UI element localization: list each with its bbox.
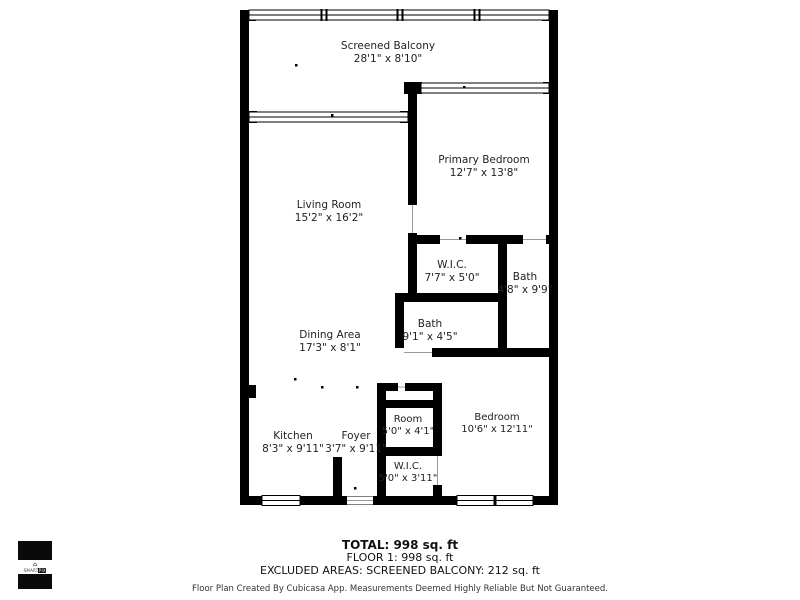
logo-band: ⌂ SMARTPIX <box>18 560 52 574</box>
sliding-doors <box>249 82 553 123</box>
total-area-text: TOTAL: 998 sq. ft <box>0 538 800 552</box>
room-dims: 3'7" x 9'11" <box>325 443 387 456</box>
room-dims: 15'2" x 16'2" <box>295 212 363 225</box>
room-name: Kitchen <box>262 430 324 443</box>
logo-brand-text: SMARTPIX <box>24 568 47 573</box>
room-dims: 4'8" x 9'9" <box>497 284 552 297</box>
room-dims: 8'3" x 9'11" <box>262 443 324 456</box>
room-label-screened-balcony: Screened Balcony 28'1" x 8'10" <box>341 40 435 66</box>
room-dims: 10'6" x 12'11" <box>461 424 533 436</box>
room-name: W.I.C. <box>379 461 438 473</box>
room-name: Screened Balcony <box>341 40 435 53</box>
room-label-wic-upper: W.I.C. 7'7" x 5'0" <box>424 259 479 285</box>
room-dims: 12'7" x 13'8" <box>438 167 529 180</box>
logo-block-top <box>18 541 52 560</box>
logo-block-bottom <box>18 574 52 589</box>
room-dims: 7'7" x 5'0" <box>424 272 479 285</box>
logo-brand-right: PIX <box>38 568 46 573</box>
room-dims: 5'0" x 4'1" <box>382 426 434 438</box>
room-label-kitchen: Kitchen 8'3" x 9'11" <box>262 430 324 456</box>
room-label-primary-bedroom: Primary Bedroom 12'7" x 13'8" <box>438 154 529 180</box>
excluded-areas-text: EXCLUDED AREAS: SCREENED BALCONY: 212 sq… <box>0 565 800 578</box>
floor-area-text: FLOOR 1: 998 sq. ft <box>0 552 800 565</box>
logo-brand-left: SMART <box>24 568 39 573</box>
balcony-screen-wall <box>249 9 549 21</box>
room-label-bath-middle: Bath 9'1" x 4'5" <box>402 318 457 344</box>
room-dims: 17'3" x 8'1" <box>299 342 361 355</box>
room-dims: 5'0" x 3'11" <box>379 473 438 485</box>
room-name: Foyer <box>325 430 387 443</box>
smartpix-logo: ⌂ SMARTPIX <box>18 541 52 589</box>
room-name: Bath <box>497 271 552 284</box>
room-label-dining-area: Dining Area 17'3" x 8'1" <box>299 329 361 355</box>
room-name: Room <box>382 414 434 426</box>
room-dims: 28'1" x 8'10" <box>341 53 435 66</box>
room-label-wic-lower: W.I.C. 5'0" x 3'11" <box>379 461 438 485</box>
room-label-bedroom: Bedroom 10'6" x 12'11" <box>461 412 533 436</box>
room-name: Bath <box>402 318 457 331</box>
room-name: Primary Bedroom <box>438 154 529 167</box>
room-name: Living Room <box>295 199 363 212</box>
floorplan-page: Screened Balcony 28'1" x 8'10" Primary B… <box>0 0 800 600</box>
summary-block: TOTAL: 998 sq. ft FLOOR 1: 998 sq. ft EX… <box>0 538 800 594</box>
room-dims: 9'1" x 4'5" <box>402 331 457 344</box>
floorplan-drawing <box>0 0 800 600</box>
room-label-bath-right: Bath 4'8" x 9'9" <box>497 271 552 297</box>
room-name: Dining Area <box>299 329 361 342</box>
room-name: W.I.C. <box>424 259 479 272</box>
room-label-living-room: Living Room 15'2" x 16'2" <box>295 199 363 225</box>
room-label-foyer: Foyer 3'7" x 9'11" <box>325 430 387 456</box>
disclaimer-text: Floor Plan Created By Cubicasa App. Meas… <box>0 584 800 594</box>
room-name: Bedroom <box>461 412 533 424</box>
room-label-room: Room 5'0" x 4'1" <box>382 414 434 438</box>
